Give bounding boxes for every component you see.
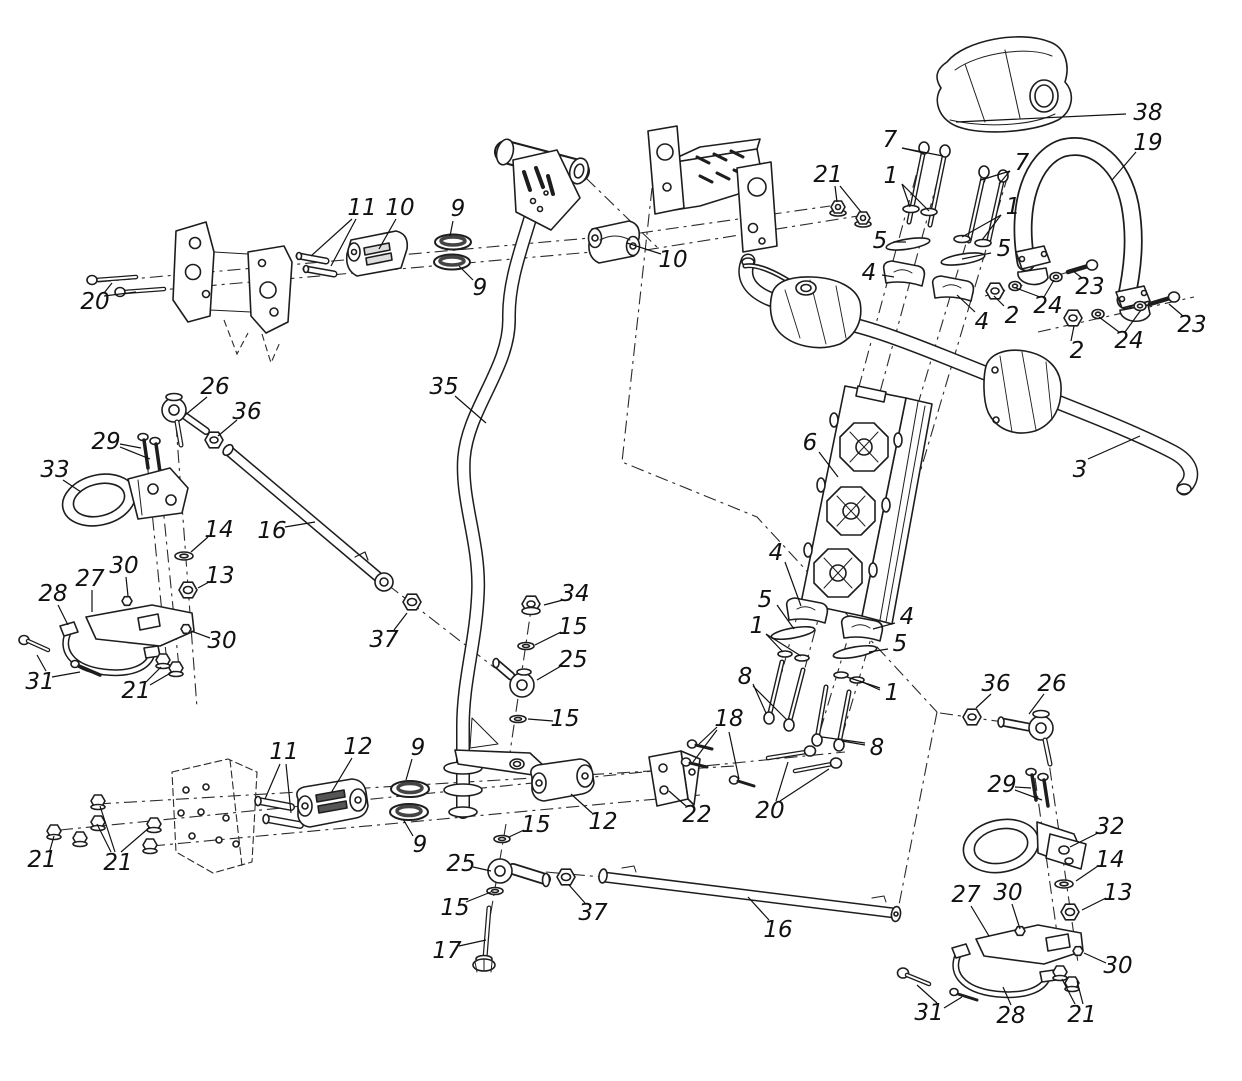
- part-label-34: 34: [560, 581, 589, 607]
- leader-line: [459, 266, 473, 280]
- part-label-5: 5: [873, 228, 888, 254]
- part-label-14: 14: [1095, 847, 1124, 873]
- part-label-28: 28: [38, 581, 67, 607]
- part-label-2: 2: [1070, 338, 1085, 364]
- part-label-21: 21: [1067, 1002, 1096, 1028]
- leader-line: [971, 906, 989, 936]
- part-label-15: 15: [521, 812, 550, 838]
- drawing: [19, 37, 1191, 1000]
- part-label-28: 28: [996, 1003, 1025, 1029]
- part-label-25: 25: [558, 647, 587, 673]
- right-spindle-cluster: [898, 709, 1087, 1000]
- leader-line: [962, 215, 1001, 237]
- leader-line: [835, 186, 837, 202]
- upper-tie-rod: [221, 443, 540, 723]
- part-label-30: 30: [109, 553, 138, 579]
- leader-line: [52, 672, 80, 677]
- leader-line: [1015, 790, 1042, 800]
- part-label-16: 16: [257, 518, 286, 544]
- leader-line: [459, 940, 486, 946]
- part-label-21: 21: [813, 162, 842, 188]
- part-label-30: 30: [1103, 953, 1132, 979]
- leader-line: [860, 681, 880, 690]
- front-mount-bracket: [87, 222, 334, 333]
- leader-line: [776, 762, 788, 801]
- part-label-36: 36: [232, 399, 261, 425]
- part-label-18: 18: [714, 706, 743, 732]
- part-label-10: 10: [658, 247, 687, 273]
- part-label-14: 14: [204, 517, 233, 543]
- part-label-33: 33: [40, 457, 69, 483]
- upper-mount-bracket: [648, 126, 871, 252]
- part-label-1: 1: [750, 613, 765, 639]
- leader-line: [466, 892, 491, 902]
- part-label-8: 8: [870, 735, 885, 761]
- leader-line: [1012, 904, 1020, 929]
- part-label-24: 24: [1114, 328, 1143, 354]
- part-label-8: 8: [738, 664, 753, 690]
- part-label-29: 29: [987, 772, 1016, 798]
- part-label-35: 35: [429, 374, 458, 400]
- part-label-21: 21: [103, 850, 132, 876]
- exploded-diagram: 3819717154542122423224233111099102035616…: [0, 0, 1242, 1081]
- diagram-page: 3819717154542122423224233111099102035616…: [0, 0, 1242, 1081]
- leader-line: [528, 719, 553, 721]
- leader-line: [406, 759, 412, 780]
- leader-line: [58, 605, 68, 625]
- part-label-11: 11: [347, 195, 376, 221]
- lower-clamp-fasteners: [764, 598, 882, 751]
- left-control-pod: [745, 266, 861, 348]
- part-label-7: 7: [1015, 150, 1030, 176]
- part-label-6: 6: [803, 430, 818, 456]
- part-label-3: 3: [1073, 457, 1088, 483]
- leader-line: [1015, 787, 1031, 788]
- leader-line: [1088, 436, 1140, 459]
- part-label-20: 20: [755, 798, 784, 824]
- leader-line: [1077, 981, 1083, 1004]
- part-label-20: 20: [80, 289, 109, 315]
- part-label-1: 1: [884, 163, 899, 189]
- part-label-27: 27: [75, 566, 105, 592]
- part-label-9: 9: [413, 832, 428, 858]
- part-label-24: 24: [1033, 293, 1062, 319]
- part-label-38: 38: [1133, 100, 1162, 126]
- part-label-16: 16: [763, 917, 792, 943]
- left-spindle-cluster: [19, 394, 223, 677]
- part-label-21: 21: [27, 847, 56, 873]
- part-label-10: 10: [385, 195, 414, 221]
- part-label-15: 15: [550, 706, 579, 732]
- part-label-4: 4: [769, 540, 784, 566]
- part-label-25: 25: [446, 851, 475, 877]
- part-label-2: 2: [1005, 303, 1020, 329]
- part-label-31: 31: [914, 1000, 943, 1026]
- part-label-36: 36: [981, 671, 1010, 697]
- part-label-4: 4: [975, 309, 990, 335]
- part-label-37: 37: [369, 627, 399, 653]
- leader-line: [126, 577, 128, 596]
- part-label-5: 5: [997, 236, 1012, 262]
- lower-tie-rod: [473, 836, 902, 973]
- part-label-29: 29: [91, 429, 120, 455]
- leader-line: [535, 632, 561, 645]
- part-label-12: 12: [343, 734, 372, 760]
- part-label-23: 23: [1075, 274, 1104, 300]
- part-label-15: 15: [440, 895, 469, 921]
- part-label-26: 26: [1037, 671, 1066, 697]
- part-label-21: 21: [121, 678, 150, 704]
- part-label-37: 37: [578, 900, 608, 926]
- part-label-1: 1: [1006, 194, 1021, 220]
- part-label-17: 17: [432, 938, 462, 964]
- rear-mount-bracket: [649, 740, 842, 806]
- part-label-9: 9: [473, 275, 488, 301]
- part-label-5: 5: [758, 587, 773, 613]
- part-label-9: 9: [451, 196, 466, 222]
- part-label-32: 32: [1095, 814, 1124, 840]
- right-control-pod: [984, 350, 1061, 433]
- part-label-15: 15: [558, 614, 587, 640]
- part-label-12: 12: [588, 809, 617, 835]
- leader-line: [780, 769, 829, 801]
- riser-block: [801, 386, 932, 624]
- part-label-30: 30: [207, 628, 236, 654]
- leader-line: [150, 671, 174, 685]
- leader-line: [944, 997, 962, 1008]
- part-label-19: 19: [1133, 130, 1162, 156]
- part-label-4: 4: [862, 260, 877, 286]
- part-label-27: 27: [951, 882, 981, 908]
- part-label-11: 11: [269, 739, 298, 765]
- part-label-4: 4: [900, 604, 915, 630]
- part-label-26: 26: [200, 374, 229, 400]
- leader-line: [120, 444, 141, 448]
- part-label-1: 1: [885, 680, 900, 706]
- part-label-13: 13: [1103, 880, 1132, 906]
- part-label-7: 7: [883, 127, 898, 153]
- part-label-9: 9: [411, 735, 426, 761]
- part-label-22: 22: [682, 802, 711, 828]
- part-label-31: 31: [25, 669, 54, 695]
- part-label-23: 23: [1177, 312, 1206, 338]
- part-label-5: 5: [893, 631, 908, 657]
- part-label-13: 13: [205, 563, 234, 589]
- leader-line: [729, 732, 739, 779]
- part-label-30: 30: [993, 880, 1022, 906]
